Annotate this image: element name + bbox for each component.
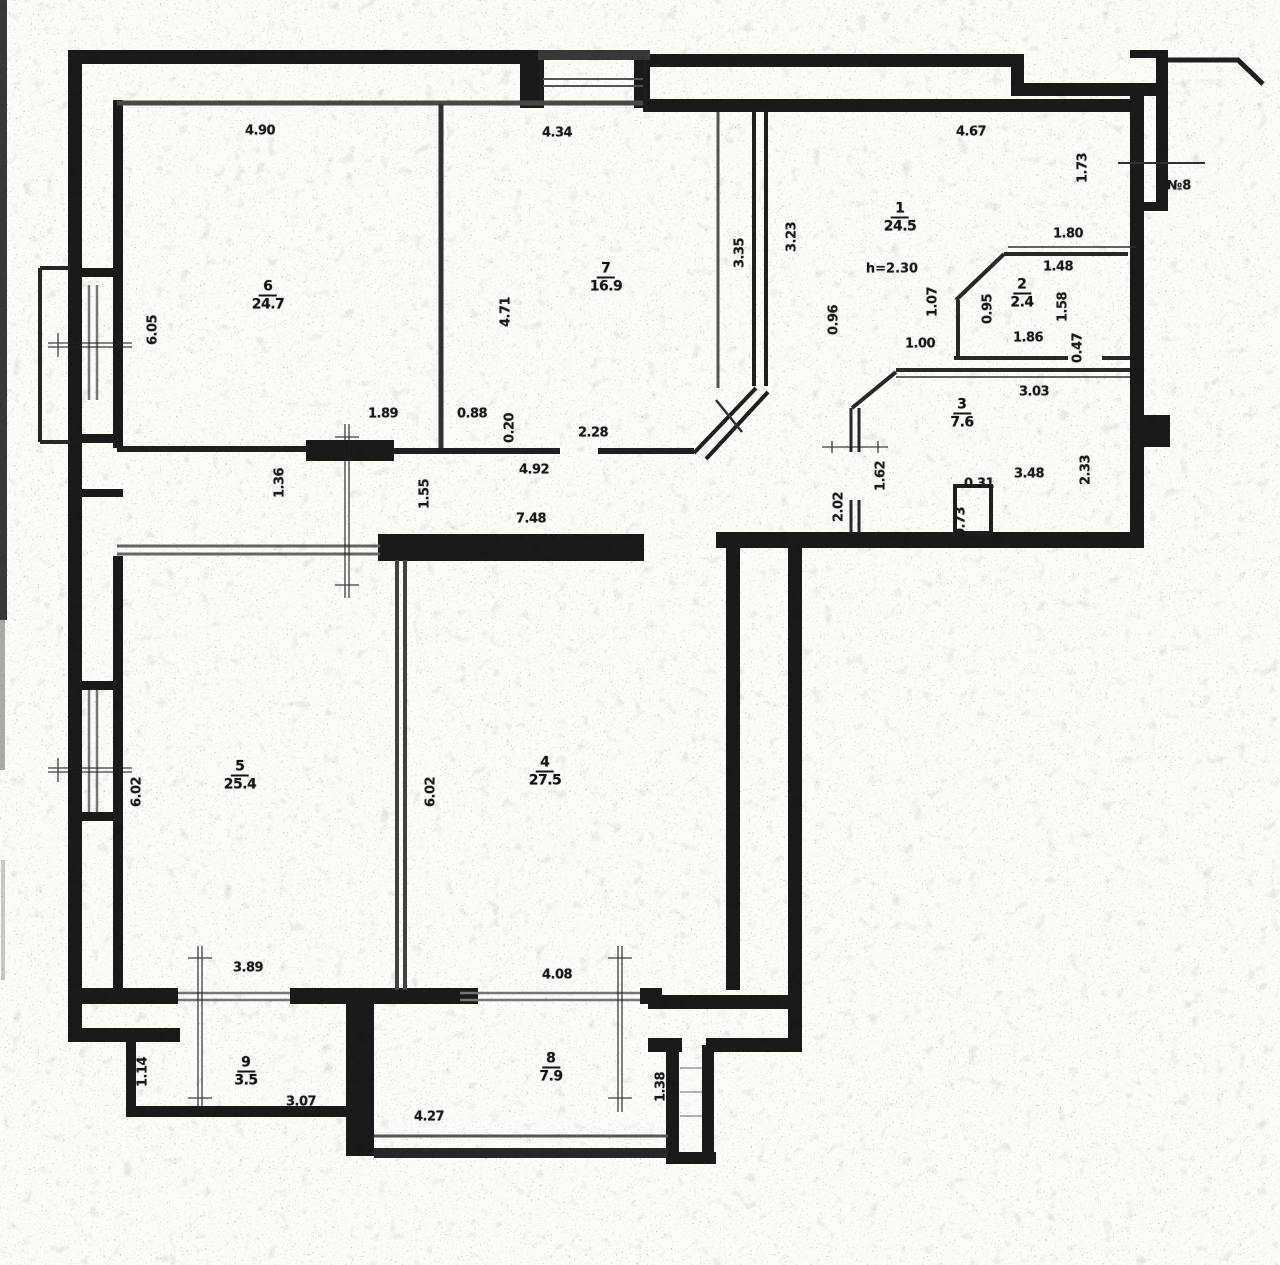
plan-labels-layer: 624.7716.9124.522.437.6525.4427.593.587.… xyxy=(0,0,1280,1265)
room-label-4: 427.5 xyxy=(529,756,562,789)
dimension-label: 7.48 xyxy=(516,512,546,527)
room-area: 24.7 xyxy=(252,297,285,313)
dimension-label: 3.35 xyxy=(733,238,748,268)
dimension-label: 4.27 xyxy=(414,1110,444,1125)
dimension-label: 4.92 xyxy=(519,463,549,478)
dimension-label: 1.80 xyxy=(1053,227,1083,242)
dimension-label: 1.73 xyxy=(1076,153,1091,183)
dimension-label: 1.38 xyxy=(654,1072,669,1102)
dimension-label: 1.00 xyxy=(905,337,935,352)
room-number: 6 xyxy=(259,280,277,297)
room-label-8: 87.9 xyxy=(539,1052,562,1085)
room-label-3: 37.6 xyxy=(950,398,973,431)
dimension-label: 2.02 xyxy=(832,492,847,522)
dimension-label: 0.96 xyxy=(827,305,842,335)
dimension-label: 1.89 xyxy=(368,407,398,422)
dimension-label: 1.36 xyxy=(273,468,288,498)
room-number: 9 xyxy=(237,1056,255,1073)
room-number: 3 xyxy=(953,398,971,415)
dimension-label: 2.28 xyxy=(578,426,608,441)
room-number: 7 xyxy=(597,262,615,279)
dimension-label: 0.20 xyxy=(503,413,518,443)
dimension-label: 4.71 xyxy=(499,297,514,327)
room-number: 1 xyxy=(891,202,909,219)
dimension-label: 1.07 xyxy=(926,287,941,317)
room-number: 8 xyxy=(542,1052,560,1069)
dimension-label: 6.05 xyxy=(146,315,161,345)
room-number: 5 xyxy=(231,760,249,777)
room-area: 7.6 xyxy=(950,415,973,431)
room-area: 25.4 xyxy=(224,777,257,793)
room-label-6: 624.7 xyxy=(252,280,285,313)
dimension-label: 4.90 xyxy=(245,124,275,139)
dimension-label: 6.02 xyxy=(424,777,439,807)
dimension-label: 1.58 xyxy=(1056,292,1071,322)
dimension-label: 2.33 xyxy=(1079,455,1094,485)
room-area: 27.5 xyxy=(529,773,562,789)
room-label-2: 22.4 xyxy=(1010,278,1033,311)
annotation-label: №8 xyxy=(1167,179,1192,194)
dimension-label: 3.89 xyxy=(233,961,263,976)
dimension-label: 0.73 xyxy=(954,507,969,537)
dimension-label: 4.67 xyxy=(956,125,986,140)
dimension-label: 3.07 xyxy=(286,1095,316,1110)
floor-plan-page: 624.7716.9124.522.437.6525.4427.593.587.… xyxy=(0,0,1280,1265)
room-label-1: 124.5 xyxy=(884,202,917,235)
dimension-label: 4.34 xyxy=(542,126,572,141)
room-area: 24.5 xyxy=(884,219,917,235)
dimension-label: 4.08 xyxy=(542,968,572,983)
room-area: 7.9 xyxy=(539,1069,562,1085)
dimension-label: 1.86 xyxy=(1013,331,1043,346)
room-area: 3.5 xyxy=(234,1073,257,1089)
room-label-7: 716.9 xyxy=(590,262,623,295)
dimension-label: 0.95 xyxy=(981,294,996,324)
dimension-label: 1.55 xyxy=(418,479,433,509)
annotation-label: h=2.30 xyxy=(866,262,918,277)
dimension-label: 3.03 xyxy=(1019,385,1049,400)
room-area: 16.9 xyxy=(590,279,623,295)
room-number: 4 xyxy=(536,756,554,773)
room-area: 2.4 xyxy=(1010,295,1033,311)
dimension-label: 0.31 xyxy=(964,477,994,492)
dimension-label: 1.62 xyxy=(874,461,889,491)
dimension-label: 1.14 xyxy=(136,1057,151,1087)
dimension-label: 0.47 xyxy=(1071,333,1086,363)
dimension-label: 6.02 xyxy=(130,777,145,807)
room-number: 2 xyxy=(1013,278,1031,295)
dimension-label: 3.48 xyxy=(1014,467,1044,482)
dimension-label: 1.48 xyxy=(1043,260,1073,275)
room-label-5: 525.4 xyxy=(224,760,257,793)
dimension-label: 0.88 xyxy=(457,407,487,422)
room-label-9: 93.5 xyxy=(234,1056,257,1089)
dimension-label: 3.23 xyxy=(785,222,800,252)
